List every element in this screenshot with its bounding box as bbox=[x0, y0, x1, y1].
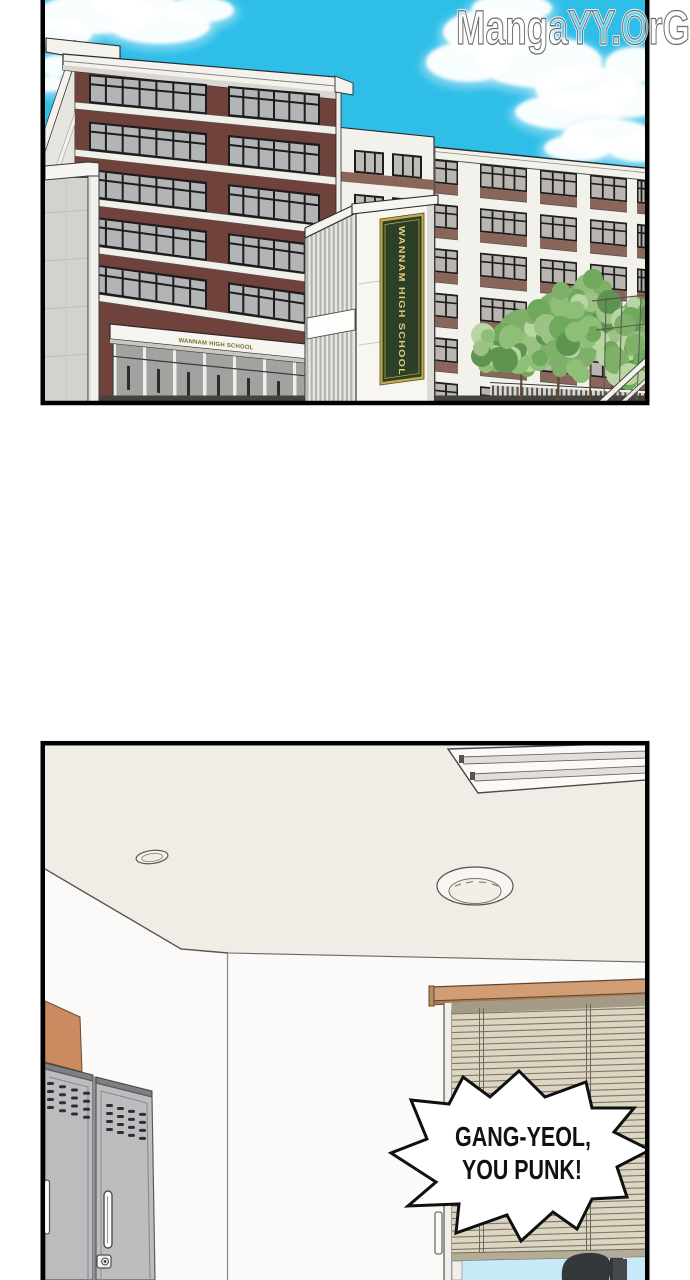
svg-text:MangaYY.OrG: MangaYY.OrG bbox=[456, 2, 690, 55]
svg-text:YOU PUNK!: YOU PUNK! bbox=[462, 1154, 582, 1185]
svg-text:WANNAM HIGH SCHOOL: WANNAM HIGH SCHOOL bbox=[397, 226, 407, 376]
svg-text:GANG-YEOL,: GANG-YEOL, bbox=[455, 1121, 591, 1152]
